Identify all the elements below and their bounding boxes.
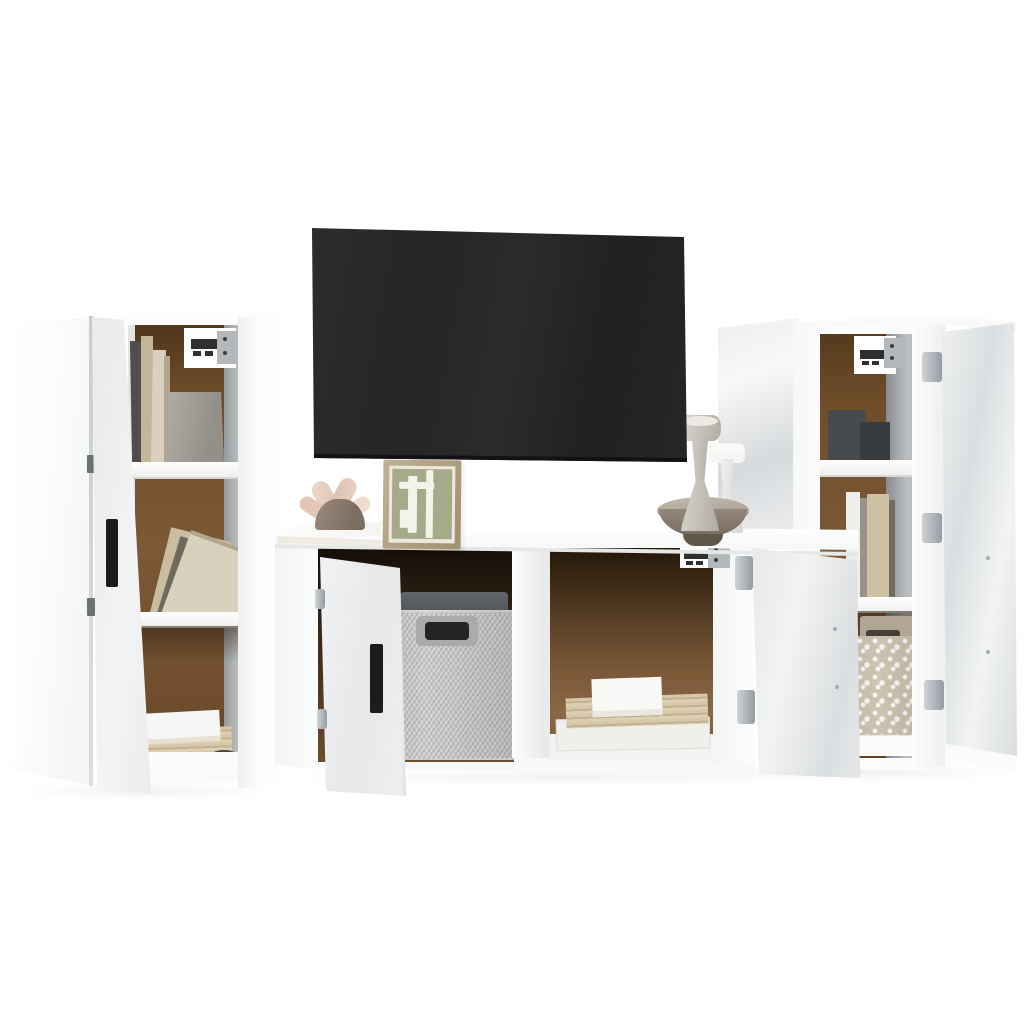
leaning-books (134, 477, 240, 613)
handle-screw-hole (833, 627, 837, 631)
door-handle (370, 644, 383, 713)
bracket-screw (890, 344, 894, 348)
product-photo-stage (0, 0, 1024, 1024)
art-shape (399, 481, 434, 489)
compartment-shadow (128, 626, 240, 662)
bracket-bar (860, 350, 886, 359)
bracket-screw (223, 351, 227, 355)
bench-right-open-door (747, 543, 863, 783)
bench-right-compartment (548, 548, 715, 760)
door-hinge (924, 680, 944, 710)
door-hinge (737, 690, 755, 724)
bench-divider (512, 548, 550, 758)
picture-frame (383, 460, 462, 550)
door-gap (89, 316, 93, 786)
bracket-screw (714, 558, 718, 562)
candle-base (681, 479, 719, 531)
bracket-foot (193, 351, 201, 356)
bracket-bar (191, 339, 220, 349)
white-book (591, 677, 662, 717)
bracket-foot (872, 361, 879, 365)
bracket-screw (890, 356, 894, 360)
door-handle (106, 519, 118, 587)
door-hinge (87, 598, 95, 616)
shelf (820, 460, 916, 477)
door-hinge (315, 589, 325, 609)
door-hinge (922, 513, 942, 543)
bracket-foot (686, 561, 693, 565)
door-hinge (735, 556, 753, 590)
bracket-metal-plate (217, 331, 238, 364)
book-spine (860, 498, 867, 597)
wall-bracket (184, 328, 240, 368)
handle-screw-hole (835, 685, 839, 689)
wall-bracket (854, 334, 914, 376)
bracket-screw (223, 337, 227, 341)
right-cabinet-open-door (938, 316, 1018, 776)
bench-left-open-door (314, 551, 408, 799)
candle-stem (687, 437, 713, 483)
bracket-metal-plate (884, 338, 904, 368)
handle-screw-hole (986, 650, 990, 654)
bracket-foot (205, 351, 213, 356)
door-hinge (317, 709, 327, 729)
candle-cup-top (682, 416, 718, 426)
bracket-foot (862, 361, 869, 365)
left-cabinet-frame (238, 311, 275, 789)
book-spine (867, 494, 889, 597)
floral-fabric-basket (856, 616, 916, 742)
basket-shading (856, 636, 916, 742)
art-shape (425, 470, 434, 537)
concrete-vase (166, 392, 224, 463)
frame-artwork (392, 469, 453, 540)
left-closed-cabinet (13, 310, 91, 792)
tv-screen (310, 225, 688, 466)
dark-storage-box (860, 422, 890, 462)
bracket-foot (696, 561, 703, 565)
art-shape (400, 509, 410, 527)
door-hinge (922, 352, 942, 382)
handle-screw-hole (986, 556, 990, 560)
basket-handle (425, 622, 469, 640)
book-spine (889, 500, 895, 597)
decor-bowl-foot (683, 534, 723, 546)
gray-fabric-basket (396, 592, 514, 758)
